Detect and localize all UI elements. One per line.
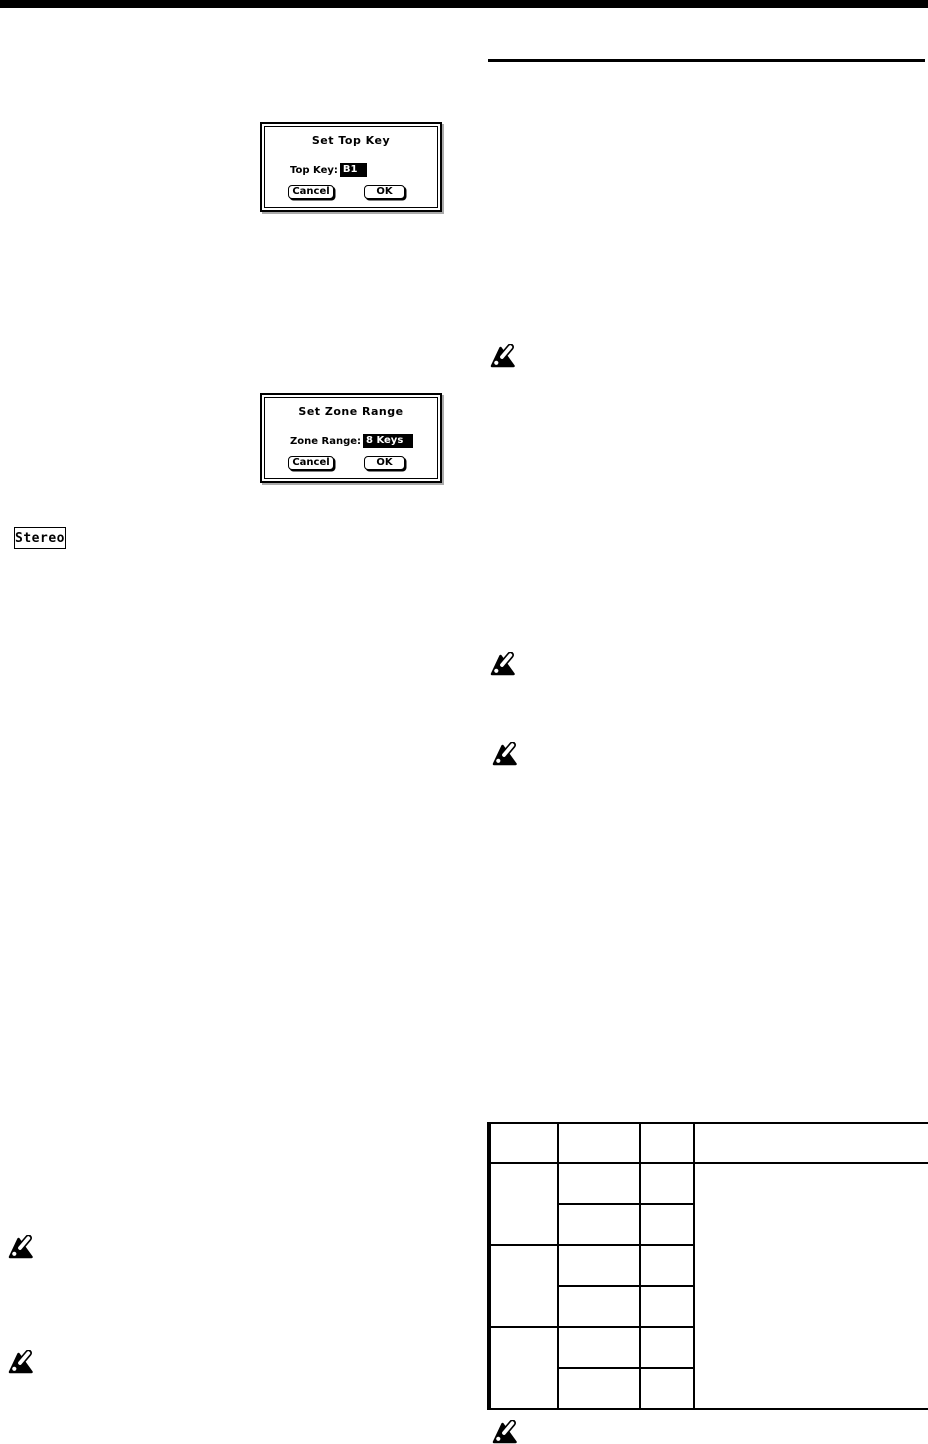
table-cell [489, 1163, 558, 1245]
spec-table [487, 1122, 928, 1410]
table-cell [694, 1163, 928, 1409]
cancel-button[interactable]: Cancel [288, 456, 334, 470]
table-cell [558, 1286, 640, 1327]
manual-page: Set Top Key Top Key: B1 Cancel OK Set Zo… [0, 0, 928, 1444]
page-top-bar [0, 0, 928, 8]
note-icon [492, 1420, 518, 1444]
set-zone-range-dialog: Set Zone Range Zone Range: 8 Keys Cancel… [260, 393, 442, 483]
ok-button[interactable]: OK [364, 456, 405, 470]
top-key-field-label: Top Key: [290, 165, 338, 176]
note-icon [492, 742, 518, 766]
table-cell [558, 1245, 640, 1286]
section-divider-rule [488, 59, 925, 62]
table-row [489, 1163, 928, 1204]
dialog-title: Set Zone Range [262, 405, 440, 418]
table-cell [640, 1245, 694, 1286]
table-cell [640, 1368, 694, 1409]
zone-range-field-label: Zone Range: [290, 436, 361, 447]
note-icon [490, 344, 516, 368]
table-cell [558, 1368, 640, 1409]
note-icon [8, 1350, 34, 1374]
ok-button[interactable]: OK [364, 185, 405, 199]
table-cell [640, 1204, 694, 1245]
table-cell [558, 1204, 640, 1245]
stereo-button[interactable]: Stereo [14, 527, 66, 549]
table-cell [558, 1327, 640, 1368]
note-icon [8, 1235, 34, 1259]
cancel-button[interactable]: Cancel [288, 185, 334, 199]
note-icon [490, 652, 516, 676]
set-top-key-dialog: Set Top Key Top Key: B1 Cancel OK [260, 122, 442, 212]
table-cell [558, 1123, 640, 1163]
table-cell [558, 1163, 640, 1204]
dialog-title: Set Top Key [262, 134, 440, 147]
zone-range-value-field[interactable]: 8 Keys [363, 434, 413, 448]
table-cell [640, 1327, 694, 1368]
table-cell [694, 1123, 928, 1163]
top-key-value-field[interactable]: B1 [340, 163, 368, 177]
table-cell [640, 1123, 694, 1163]
table-cell [640, 1163, 694, 1204]
table-header-row [489, 1123, 928, 1163]
table-cell [489, 1123, 558, 1163]
table-cell [640, 1286, 694, 1327]
table-cell [489, 1245, 558, 1327]
table-cell [489, 1327, 558, 1409]
